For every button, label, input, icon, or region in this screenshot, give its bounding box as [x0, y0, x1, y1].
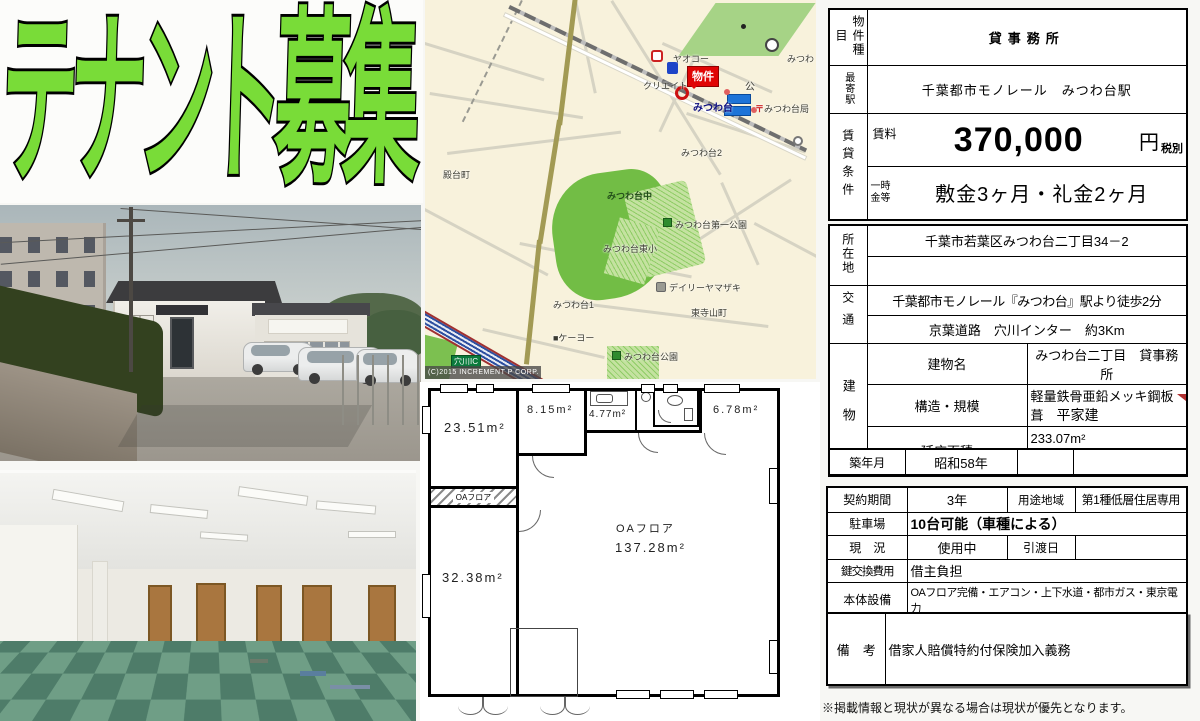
- map-label-mitsuwadai1: みつわ台1: [553, 298, 594, 311]
- room-c-area: 4.77m²: [589, 409, 626, 420]
- map-road: [447, 131, 621, 155]
- handover-label: 引渡日: [1007, 535, 1075, 559]
- window: [422, 574, 431, 618]
- table-row: 最寄駅 千葉都市モノレール みつわ台駅: [829, 66, 1187, 114]
- rent-label: 賃料: [873, 125, 897, 142]
- window: [769, 640, 778, 674]
- main-room-area: 137.28m²: [615, 540, 686, 555]
- map-copyright: (C)2015 INCREMENT P CORP.: [425, 366, 541, 379]
- map-dot: [741, 24, 746, 29]
- property-type-value: 貸事務所: [867, 9, 1187, 66]
- interior-photo: [0, 470, 416, 721]
- toilet-icon: [667, 395, 683, 406]
- main-room-name: OAフロア: [616, 520, 675, 536]
- building-name-value: みつわ台二丁目 貸事務所: [1027, 343, 1187, 384]
- window: [532, 384, 570, 393]
- map-dot: [724, 89, 730, 95]
- exterior-photo: [0, 205, 421, 461]
- initial-fees-value: 敷金3ヶ月・礼金2ヶ月: [901, 178, 1184, 207]
- station-marker: [793, 136, 803, 146]
- initial-fees-label: 一時金等: [871, 181, 895, 204]
- entrance-door-leaf: [540, 697, 565, 715]
- carpet-floor: [0, 641, 416, 721]
- address-line2: [867, 256, 1187, 285]
- table-row: 建物 建物名 みつわ台二丁目 貸事務所: [829, 343, 1187, 384]
- room-a-area: 23.51m²: [444, 420, 506, 435]
- building-name-label: 建物名: [867, 343, 1027, 384]
- toilet-tank: [684, 408, 693, 421]
- summary-table: 物件種目 貸事務所 最寄駅 千葉都市モノレール みつわ台駅 賃貸条件 賃料 37…: [828, 8, 1188, 221]
- pole-crossarm: [117, 219, 145, 222]
- ceiling-light: [348, 531, 396, 538]
- map-label-higashiterayama: 東寺山町: [691, 306, 727, 319]
- entrance-door-leaf: [458, 697, 483, 715]
- chain-fence: [342, 355, 421, 425]
- post-mark: 〒: [755, 104, 764, 114]
- rent-amount: 370,000: [903, 121, 1135, 160]
- ground-shadow: [118, 405, 372, 447]
- remarks-table: 備 考 借家人賠償特約付保険加入義務: [826, 612, 1188, 686]
- structure-label: 構造・規模: [867, 384, 1027, 426]
- map-label-elementary: みつわ台東小: [603, 242, 657, 255]
- map-label-park2: みつわ台公園: [624, 350, 678, 363]
- door: [302, 585, 332, 645]
- parking-label: 駐車場: [827, 512, 907, 535]
- entrance-door-leaf: [483, 697, 508, 715]
- window: [616, 690, 650, 699]
- window: [422, 406, 431, 434]
- initial-fees-cell: 一時金等 敷金3ヶ月・礼金2ヶ月: [867, 167, 1187, 220]
- window: [663, 384, 678, 393]
- park-icon: [612, 351, 621, 360]
- handover-value: [1075, 535, 1187, 559]
- shop-icon: [651, 50, 663, 62]
- door: [256, 585, 282, 645]
- structure-value: 軽量鉄骨亜鉛メッキ鋼板葺 平家建: [1027, 384, 1187, 426]
- built-year-table: 築年月 昭和58年: [828, 448, 1188, 476]
- table-row: 現 況 使用中 引渡日: [827, 535, 1187, 559]
- entrance-door: [170, 317, 194, 369]
- floor-plan: OAフロア: [420, 382, 820, 721]
- status-label: 現 況: [827, 535, 907, 559]
- room-e-area: 32.38m²: [442, 570, 504, 585]
- contract-label: 契約期間: [827, 487, 907, 512]
- status-value: 使用中: [907, 535, 1007, 559]
- plan-wall: [635, 388, 637, 432]
- window: [440, 384, 468, 393]
- map-road: [565, 300, 769, 328]
- map-road: [425, 208, 549, 276]
- nearest-station-value: 千葉都市モノレール みつわ台駅: [867, 66, 1187, 114]
- plan-inner-partition: [510, 628, 578, 697]
- map-label-daily-yamazaki: デイリーヤマザキ: [669, 281, 741, 294]
- room-d-area: 6.78m²: [713, 404, 759, 416]
- zoning-value: 第1種低層住居専用: [1075, 487, 1187, 512]
- map-label-create: クリエイト: [643, 79, 688, 92]
- park-icon: [663, 218, 672, 227]
- map-label-tonodai: 殿台町: [443, 168, 470, 181]
- map-label-yaoko: ヤオコー: [673, 52, 709, 65]
- plan-wall: [699, 388, 702, 433]
- table-row: 所在地 千葉市若葉区みつわ台二丁目34－2: [829, 225, 1187, 256]
- major-road: [524, 240, 542, 365]
- sink-bowl: [596, 394, 613, 403]
- tenant-banner: テナント募集: [0, 0, 423, 203]
- table-row: 備 考 借家人賠償特約付保険加入義務: [827, 613, 1187, 685]
- table-row: 京葉道路 穴川インター 約3Km: [829, 315, 1187, 343]
- contract-value: 3年: [907, 487, 1007, 512]
- room-b-area: 8.15m²: [527, 404, 573, 416]
- map-road: [754, 222, 816, 265]
- built-value: 昭和58年: [905, 449, 1017, 475]
- banner-text: テナント募集: [0, 8, 255, 196]
- left-wall: [0, 525, 78, 655]
- key-fee-label: 鍵交換費用: [827, 559, 907, 582]
- built-label: 築年月: [829, 449, 905, 475]
- map-label-partial: みつわ: [787, 52, 814, 65]
- conditions-table: 契約期間 3年 用途地域 第1種低層住居専用 駐車場 10台可能（車種による） …: [826, 486, 1188, 619]
- entrance-door-leaf: [565, 697, 590, 715]
- map-label-mitsuwadai2: みつわ台2: [681, 146, 722, 159]
- window: [704, 384, 740, 393]
- green-area: [678, 3, 815, 56]
- table-row: 鍵交換費用 借主負担: [827, 559, 1187, 582]
- table-row: 交通 千葉都市モノレール『みつわ台』駅より徒歩2分: [829, 285, 1187, 315]
- map-label-first-park: みつわ台第一公園: [675, 218, 747, 231]
- map-label-keiyo: ■ケーヨー: [553, 331, 594, 344]
- built-extra1: [1017, 449, 1073, 475]
- entrance-canopy: [156, 305, 208, 315]
- table-row: 築年月 昭和58年: [829, 449, 1187, 475]
- map-label-park-kanji: 公: [745, 78, 755, 93]
- plan-oa-strip: OAフロア: [431, 486, 516, 508]
- door: [368, 585, 396, 645]
- remarks-label: 備 考: [827, 613, 885, 685]
- window: [769, 468, 778, 504]
- property-type-label-cell: 物件種目: [829, 9, 867, 66]
- building-sign: [268, 319, 348, 334]
- store-icon: [656, 282, 666, 292]
- facility-icon: [765, 38, 779, 52]
- utility-pole: [129, 207, 133, 372]
- table-row: [829, 256, 1187, 285]
- window: [704, 690, 738, 699]
- access-train-value: 千葉都市モノレール『みつわ台』駅より徒歩2分: [867, 285, 1187, 315]
- door: [196, 583, 226, 647]
- map-label-jhs: みつわ台中: [607, 189, 652, 202]
- table-row: 賃貸条件 賃料 370,000 円 税別: [829, 114, 1187, 167]
- built-extra2: [1073, 449, 1187, 475]
- major-road: [557, 0, 578, 125]
- zoning-label: 用途地域: [1007, 487, 1075, 512]
- table-row: 駐車場 10台可能（車種による）: [827, 512, 1187, 535]
- window: [476, 384, 494, 393]
- access-label-cell: 交通: [829, 285, 867, 343]
- lease-terms-label-cell: 賃貸条件: [829, 114, 867, 220]
- table-row: 構造・規模 軽量鉄骨亜鉛メッキ鋼板葺 平家建: [829, 384, 1187, 426]
- window: [641, 384, 655, 393]
- corner-marker: [1177, 394, 1186, 401]
- map-label-station: みつわ台: [693, 99, 733, 114]
- key-fee-value: 借主負担: [907, 559, 1187, 582]
- parking-value: 10台可能（車種による）: [907, 512, 1187, 535]
- property-flag: 物件: [687, 66, 719, 87]
- table-row: 物件種目 貸事務所: [829, 9, 1187, 66]
- table-row: 一時金等 敷金3ヶ月・礼金2ヶ月: [829, 167, 1187, 220]
- access-road-value: 京葉道路 穴川インター 約3Km: [867, 315, 1187, 343]
- window: [660, 690, 694, 699]
- nearest-station-label-cell: 最寄駅: [829, 66, 867, 114]
- area-map: 物件 殿台町 ヤオコー クリエイト 公 みつわ台 〒みつわ台局 みつわ台2 みつ…: [425, 0, 816, 379]
- map-label-post-office: みつわ台局: [764, 104, 809, 114]
- rent-tax-note: 税別: [1161, 140, 1183, 156]
- door: [148, 585, 172, 647]
- plan-wall: [584, 388, 587, 456]
- rent-cell: 賃料 370,000 円 税別: [867, 114, 1187, 167]
- oa-strip-label: OAフロア: [453, 492, 495, 503]
- flyer-page: テナント募集: [0, 0, 1200, 721]
- table-row: 契約期間 3年 用途地域 第1種低層住居専用: [827, 487, 1187, 512]
- location-building-table: 所在地 千葉市若葉区みつわ台二丁目34－2 交通 千葉都市モノレール『みつわ台』…: [828, 224, 1188, 477]
- remarks-value: 借家人賠償特約付保険加入義務: [885, 613, 1187, 685]
- toilet-room: [653, 388, 699, 427]
- washbasin: [641, 392, 651, 402]
- rent-currency: 円: [1139, 126, 1159, 155]
- address-label-cell: 所在地: [829, 225, 867, 285]
- disclaimer-note: ※掲載情報と現状が異なる場合は現状が優先となります。: [822, 699, 1132, 716]
- apartment-windows: [0, 271, 95, 287]
- address-value: 千葉市若葉区みつわ台二丁目34－2: [867, 225, 1187, 256]
